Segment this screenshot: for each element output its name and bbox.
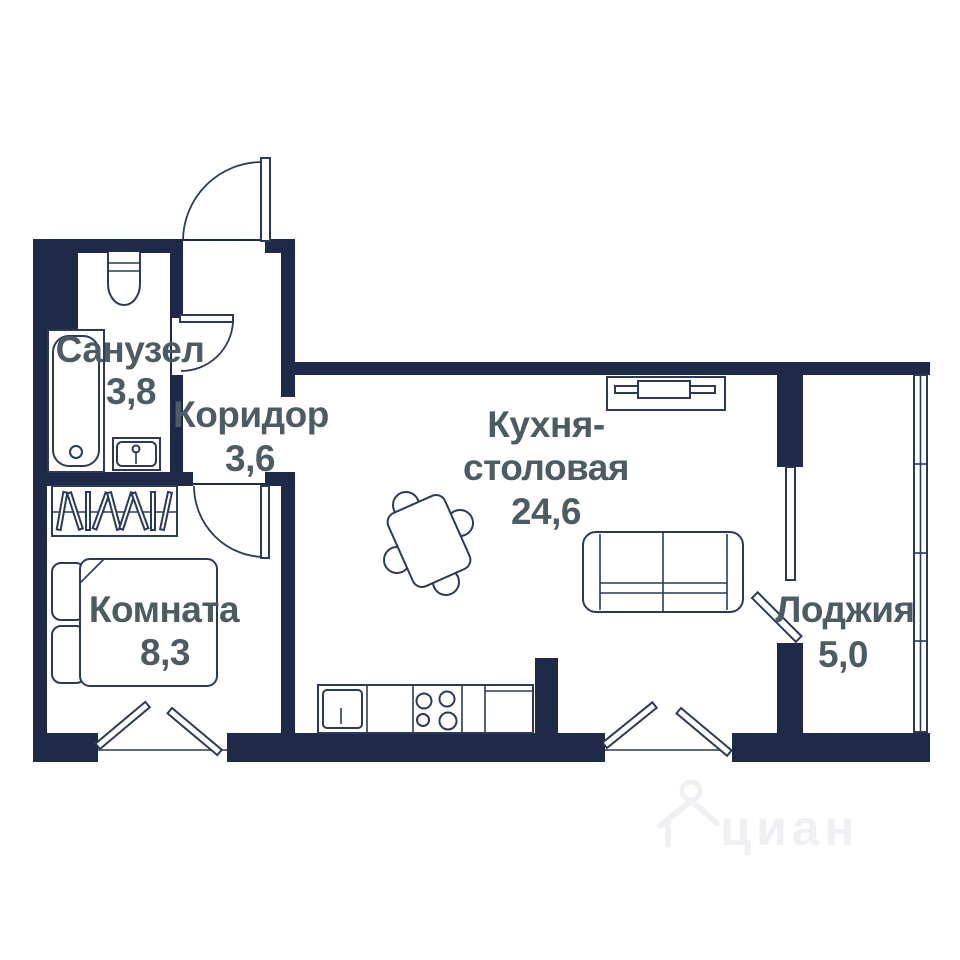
room-door bbox=[194, 486, 269, 558]
toilet-body bbox=[108, 252, 140, 305]
wall-loggia-top bbox=[803, 362, 930, 375]
dining-set bbox=[384, 492, 474, 595]
door-swing-arc bbox=[194, 486, 265, 557]
watermark: циан bbox=[660, 782, 860, 856]
stove-burner bbox=[440, 713, 457, 730]
floor-plan-drawing: Санузел 3,8 Коридор 3,6 Кухня- столовая … bbox=[0, 0, 960, 960]
kitchen-counter bbox=[318, 685, 533, 733]
wall-kitchen-pilaster bbox=[535, 658, 558, 735]
entrance-door bbox=[183, 158, 270, 241]
label-bathroom-name: Санузел bbox=[56, 329, 205, 370]
kitchen-window bbox=[603, 702, 732, 756]
floor-plan: Санузел 3,8 Коридор 3,6 Кухня- столовая … bbox=[0, 0, 960, 960]
wall-bottom-left bbox=[33, 733, 98, 762]
casement-left bbox=[603, 702, 657, 748]
door-leaf bbox=[261, 486, 269, 558]
room-window bbox=[96, 702, 227, 755]
sideboard-shelf bbox=[638, 381, 690, 398]
stove-burner bbox=[417, 714, 429, 726]
label-room-area: 8,3 bbox=[140, 632, 190, 673]
watermark-text: циан bbox=[720, 800, 859, 856]
kitchen-loggia-window bbox=[786, 467, 795, 580]
loggia-glazing-window bbox=[914, 375, 927, 732]
wall-room-top bbox=[33, 472, 193, 486]
door-swing-arc bbox=[183, 162, 262, 241]
casement-left bbox=[96, 702, 150, 749]
label-bathroom-area: 3,8 bbox=[106, 371, 156, 412]
threshold-entrance bbox=[183, 239, 265, 241]
label-loggia-name: Лоджия bbox=[775, 589, 914, 630]
sink-bathroom bbox=[113, 438, 160, 470]
wardrobe bbox=[52, 486, 177, 536]
label-kitchen-name-line1: Кухня- bbox=[487, 404, 604, 445]
wall-kitchen-top bbox=[295, 362, 777, 375]
label-kitchen-area: 24,6 bbox=[511, 491, 581, 532]
door-leaf bbox=[261, 158, 270, 241]
casement-right bbox=[677, 708, 732, 756]
wall-pier-bath bbox=[33, 240, 78, 330]
sofa bbox=[583, 532, 743, 612]
wall-bathroom-right-upper bbox=[170, 239, 183, 318]
sideboard bbox=[607, 377, 725, 410]
wall-loggia-partition-top bbox=[777, 362, 803, 467]
hanger bbox=[151, 492, 155, 530]
stove-burner bbox=[417, 694, 432, 709]
label-room-name: Комната bbox=[89, 589, 240, 630]
wall-room-kitchen bbox=[281, 472, 295, 735]
casement-right bbox=[168, 708, 222, 755]
watermark-house-icon bbox=[660, 801, 717, 845]
label-corridor-name: Коридор bbox=[173, 394, 329, 435]
toilet bbox=[108, 252, 140, 305]
wall-corridor-right bbox=[281, 239, 295, 397]
kitchen-sink bbox=[323, 690, 362, 728]
label-corridor-area: 3,6 bbox=[225, 438, 275, 479]
wall-bottom-middle bbox=[227, 733, 605, 762]
threshold-room-door bbox=[193, 483, 265, 485]
label-loggia-area: 5,0 bbox=[818, 634, 868, 675]
watermark-pin-icon bbox=[682, 782, 700, 800]
label-kitchen-name-line2: столовая bbox=[463, 447, 629, 488]
wall-bottom-right bbox=[732, 733, 930, 762]
door-leaf bbox=[180, 315, 233, 322]
hanger bbox=[86, 492, 90, 530]
stove-burner bbox=[440, 692, 455, 707]
